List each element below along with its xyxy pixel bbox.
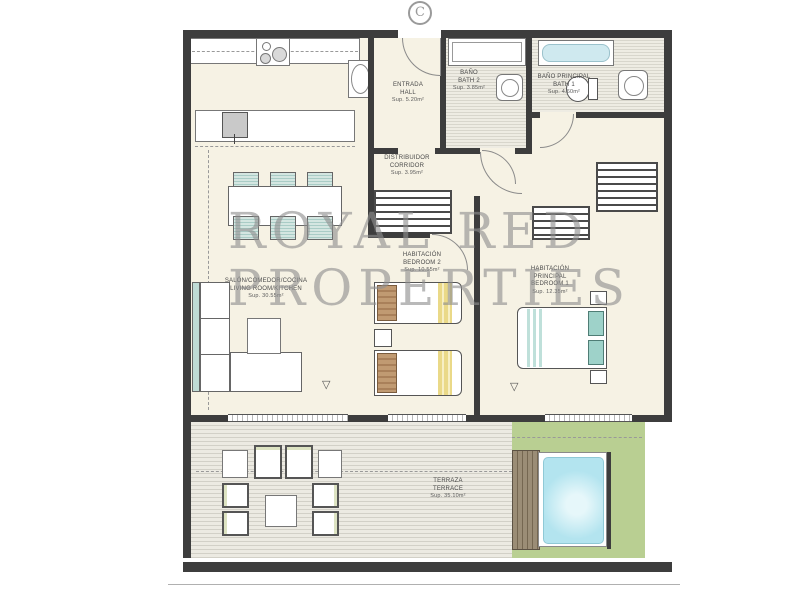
room-label-hall: ENTRADA HALL Sup. 5.20m² — [382, 82, 434, 105]
basin-bowl-icon — [501, 79, 519, 97]
bed-runner — [527, 309, 543, 367]
sliding-door — [228, 414, 348, 422]
room-name-es: BAÑO — [447, 70, 491, 78]
wall — [526, 38, 532, 150]
room-area: Sup. 4.60m² — [536, 89, 592, 97]
terrace-chair — [222, 483, 249, 508]
room-label-terrace: TERRAZA TERRACE Sup. 35.10m² — [420, 478, 476, 501]
wall — [664, 30, 672, 422]
sink-faucet — [234, 134, 235, 144]
bottom-bar — [183, 562, 672, 572]
room-name-en: TERRACE — [420, 486, 476, 494]
ground-line — [168, 584, 680, 585]
terrace-chair — [222, 511, 249, 536]
wall — [632, 415, 666, 422]
room-area: Sup. 35.10m² — [420, 493, 476, 501]
wall — [190, 415, 228, 422]
entrance-door-leaf — [440, 38, 441, 76]
bathtub-inner — [542, 44, 610, 62]
room-label-bath1: BAÑO PRINCIPAL BATH 1 Sup. 4.60m² — [536, 74, 592, 97]
pool-deck-planks — [512, 450, 540, 550]
coffee-table — [247, 318, 281, 354]
terrace-chair — [312, 511, 339, 536]
room-area: Sup. 3.85m² — [447, 85, 491, 93]
terrace-armchair — [254, 445, 282, 479]
wall — [348, 415, 388, 422]
compass-letter: C — [415, 5, 425, 20]
terrace-table — [265, 495, 297, 527]
wall — [576, 112, 672, 118]
watermark-line1: ROYAL RED — [228, 203, 608, 260]
watermark: ROYAL RED PROPERTIES — [228, 203, 608, 317]
wall — [183, 30, 398, 38]
burner-icon — [260, 53, 271, 64]
room-name-en: BATH 1 — [536, 82, 592, 90]
terrace-chair — [312, 483, 339, 508]
terrace-side-table — [318, 450, 342, 478]
sofa-back — [192, 282, 200, 392]
kitchen-island — [195, 110, 355, 142]
wall — [368, 38, 374, 150]
level-marker: ▽ — [322, 380, 330, 391]
window — [545, 414, 632, 422]
level-marker: ▽ — [510, 382, 518, 393]
room-label-bath2: BAÑO BATH 2 Sup. 3.85m² — [447, 70, 491, 93]
room-name-en: CORRIDOR — [380, 163, 434, 171]
sofa-chaise — [230, 352, 302, 392]
wall — [435, 148, 480, 154]
shower-tray — [448, 38, 526, 66]
compass-marker: C — [408, 1, 432, 25]
room-area: Sup. 3.95m² — [380, 170, 434, 178]
room-name-en: BATH 2 — [447, 78, 491, 86]
terrace-side-table — [222, 450, 248, 478]
room-name-es: TERRAZA — [420, 478, 476, 486]
bed-runner — [438, 351, 452, 395]
burner-icon — [262, 42, 271, 51]
terrace-armchair — [285, 445, 313, 479]
room-name-en: HALL — [382, 90, 434, 98]
bed-pillow — [377, 353, 397, 393]
wall — [441, 30, 672, 38]
wall — [532, 112, 540, 118]
pool — [543, 457, 604, 544]
kitchen-dashed-line — [195, 146, 355, 147]
bed-pillow — [588, 340, 604, 365]
lawn-dashed-line — [512, 437, 642, 438]
window — [388, 414, 466, 422]
basin-bowl-icon — [624, 76, 644, 96]
wall — [183, 30, 191, 558]
island-sink — [222, 112, 248, 138]
room-name-es: DISTRIBUIDOR — [380, 155, 434, 163]
pool-side-wall — [607, 452, 611, 549]
room-name-es: ENTRADA — [382, 82, 434, 90]
burner-icon — [272, 47, 287, 62]
floor-plan: ▽ ▽ C ENTRADA HALL Sup. 5.20m² BAÑO BATH… — [0, 0, 800, 600]
room-name-es: BAÑO PRINCIPAL — [536, 74, 592, 82]
room-area: Sup. 5.20m² — [382, 97, 434, 105]
nightstand — [590, 370, 607, 384]
watermark-line2: PROPERTIES — [228, 260, 608, 317]
room-label-corridor: DISTRIBUIDOR CORRIDOR Sup. 3.95m² — [380, 155, 434, 178]
nightstand — [374, 329, 392, 347]
